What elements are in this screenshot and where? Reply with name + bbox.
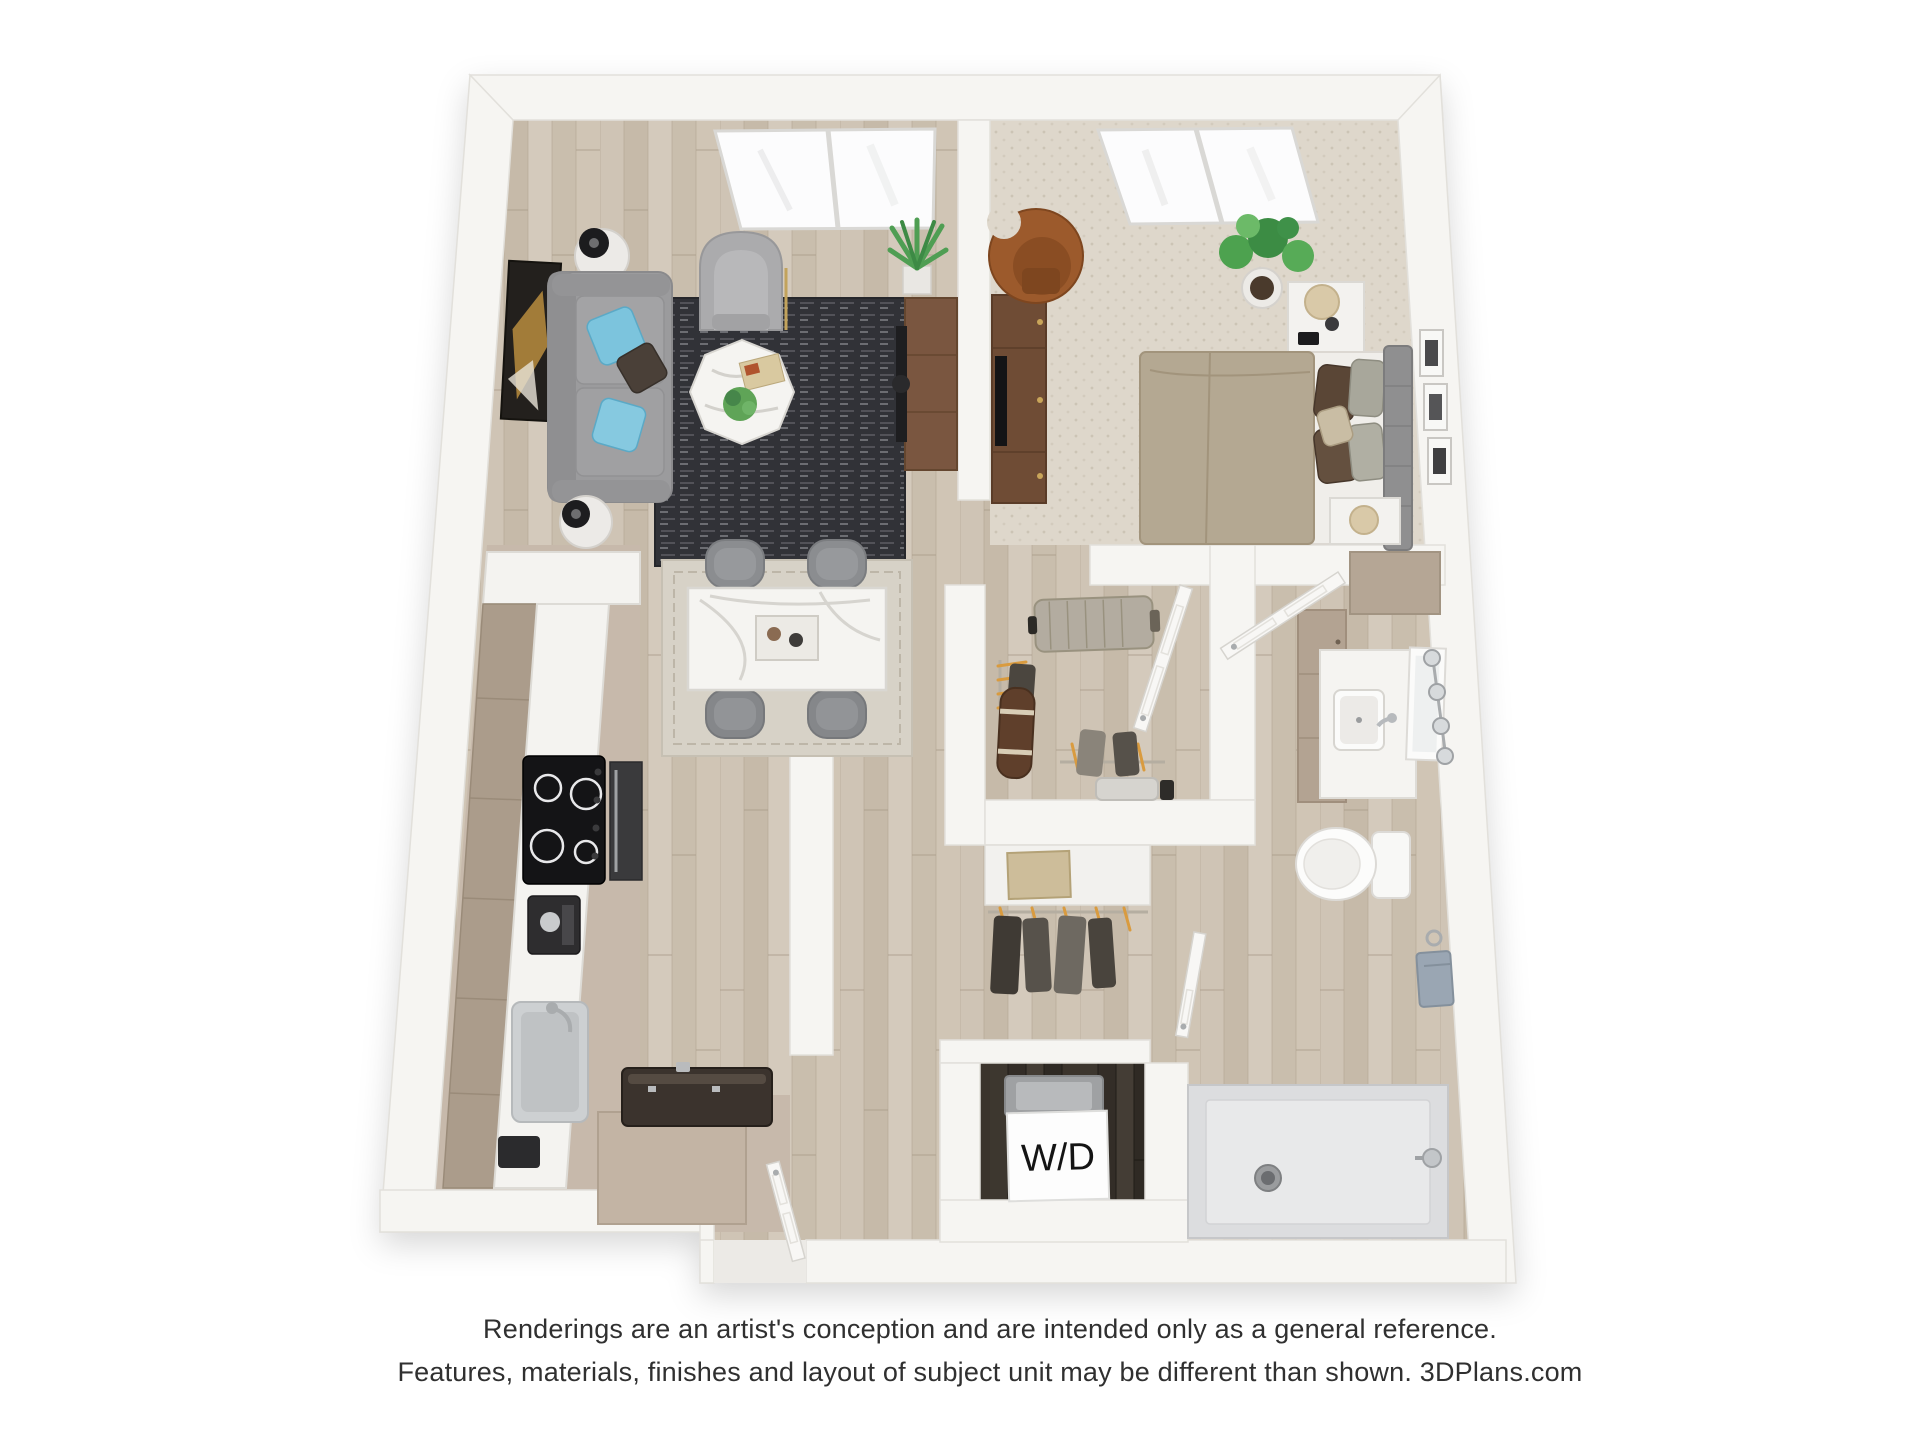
wall-closet-west (945, 585, 985, 845)
wall-top (470, 75, 1443, 120)
laundry-closet: W/D (1005, 1076, 1109, 1201)
sofa (548, 272, 672, 502)
nightstand-bottom (1330, 498, 1400, 544)
kitchen-sink (512, 1002, 588, 1122)
pillow-pattern-2 (1347, 422, 1387, 481)
storage-trunk (622, 1062, 772, 1126)
toilet-tank (1372, 832, 1410, 898)
vanity-counter (1320, 650, 1416, 798)
side-table-bottom (560, 496, 612, 548)
desk (992, 295, 1046, 503)
desk-monitor (995, 356, 1007, 446)
duffel-bag (997, 687, 1036, 779)
wall-laundry-header (940, 1040, 1150, 1063)
dining-table (688, 588, 886, 690)
bedside-lamp-bottom (1350, 506, 1378, 534)
kitchen-counter-top-run (483, 552, 640, 604)
coffee-table (690, 340, 794, 444)
dining-chair-1 (706, 540, 764, 588)
wall-bottom-main (806, 1240, 1506, 1283)
wall-entry-jamb (700, 1240, 714, 1283)
oven (610, 762, 642, 880)
closet-bench (1096, 778, 1174, 800)
dining-area (662, 540, 912, 756)
armchair (700, 232, 790, 330)
wall-partition-living-bedroom (958, 120, 990, 500)
toilet (1296, 828, 1410, 900)
smartphone (1298, 332, 1319, 345)
vanity-upper-cabinet (1350, 552, 1440, 614)
skylight-bedroom (1098, 128, 1318, 224)
wall-closet-south (985, 800, 1255, 845)
small-appliance (498, 1136, 540, 1168)
duvet (1140, 352, 1314, 544)
coffee-maker (528, 896, 580, 954)
soundbar (892, 375, 910, 393)
kitchen-peninsula (598, 1062, 772, 1224)
shower (1188, 1085, 1448, 1238)
nightstand-top (1288, 282, 1364, 356)
bedside-lamp-top (1305, 285, 1339, 319)
cooktop (523, 756, 605, 884)
washer-dryer: W/D (1005, 1076, 1109, 1201)
area-rug (655, 298, 905, 566)
wall-laundry-south (940, 1200, 1188, 1242)
disclaimer-caption: Renderings are an artist's conception an… (0, 1308, 1920, 1394)
disclaimer-line-1: Renderings are an artist's conception an… (60, 1308, 1920, 1351)
washer-dryer-label: W/D (1021, 1136, 1096, 1180)
floor-plan-rendering: W/D (0, 0, 1920, 1440)
floor-plan-page: W/D (0, 0, 1920, 1440)
serving-tray (756, 616, 818, 660)
skylight-living (715, 129, 935, 229)
disclaimer-line-2: Features, materials, finishes and layout… (60, 1351, 1920, 1394)
dining-chair-3 (706, 690, 764, 738)
dining-chair-4 (808, 690, 866, 738)
wall-closet-bathroom (1210, 545, 1255, 800)
storage-box (1007, 851, 1071, 899)
pillow-pattern-1 (1348, 359, 1386, 417)
suitcase (1027, 596, 1161, 653)
dining-chair-2 (808, 540, 866, 588)
